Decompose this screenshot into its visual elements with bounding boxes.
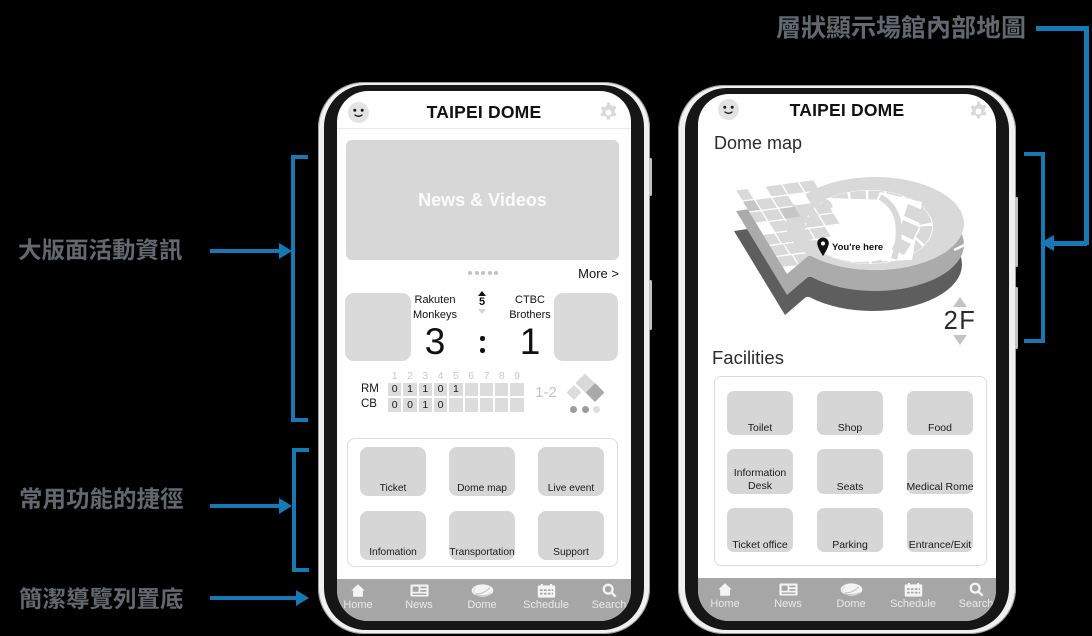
svg-text:You're here: You're here xyxy=(832,242,883,253)
